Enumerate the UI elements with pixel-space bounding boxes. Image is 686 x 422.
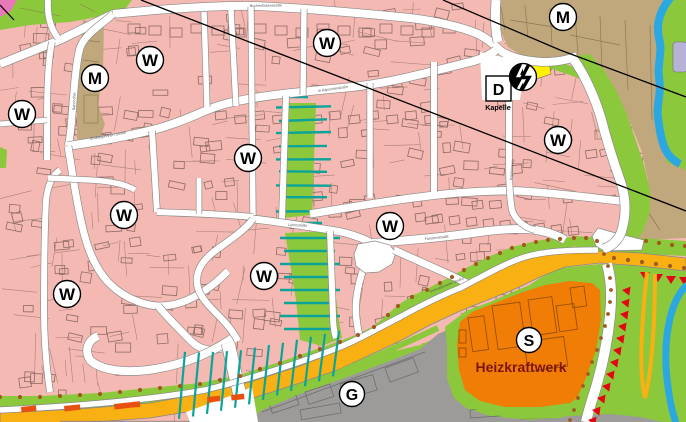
svg-text:M: M <box>556 8 570 27</box>
svg-text:W: W <box>14 105 31 124</box>
svg-text:W: W <box>116 206 133 225</box>
svg-text:Lehmstraße: Lehmstraße <box>288 223 307 228</box>
svg-text:W: W <box>319 34 336 53</box>
svg-text:W: W <box>550 131 567 150</box>
svg-text:W: W <box>142 51 159 70</box>
svg-text:M: M <box>88 69 102 88</box>
svg-text:Bahnhofstr.: Bahnhofstr. <box>72 92 77 110</box>
svg-text:W: W <box>256 267 273 286</box>
svg-text:S: S <box>524 333 535 350</box>
svg-text:W: W <box>59 285 76 304</box>
svg-text:G: G <box>346 387 358 404</box>
svg-text:Kapelle: Kapelle <box>485 103 511 112</box>
svg-text:W: W <box>382 217 399 236</box>
svg-text:W: W <box>240 149 257 168</box>
svg-text:D: D <box>493 82 505 99</box>
svg-text:Heizkraftwerk: Heizkraftwerk <box>475 359 566 375</box>
svg-text:Buchenfinkenstraße: Buchenfinkenstraße <box>250 3 282 8</box>
